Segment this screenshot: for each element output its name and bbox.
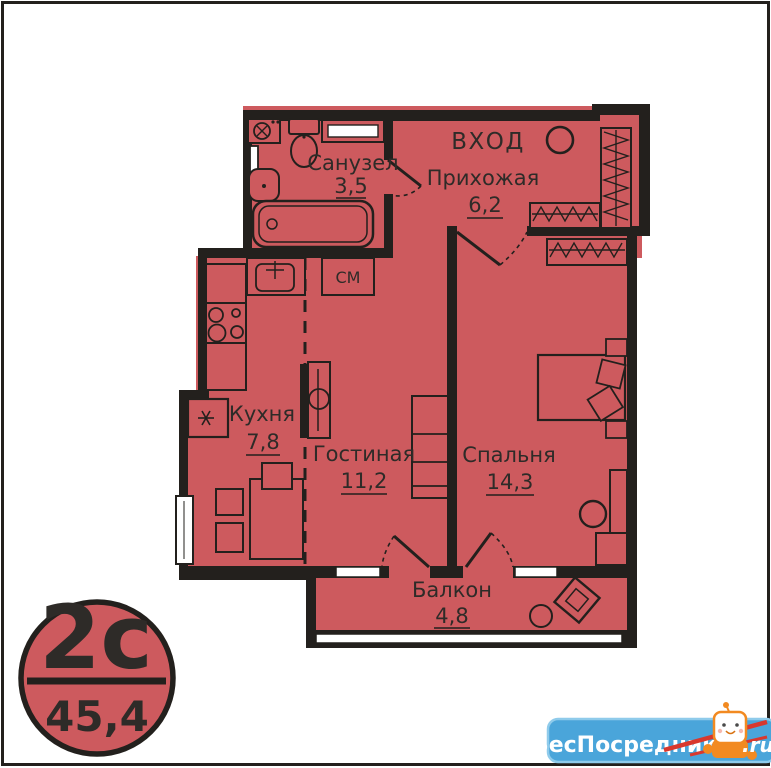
kitchen-table-icon — [250, 479, 303, 559]
badge-unit-type: 2с — [39, 586, 152, 689]
tv-wall-bar — [300, 364, 308, 438]
pillow-icon — [596, 359, 625, 388]
floor-plan-page: ВХОД Санузел 3,5 Прихожая 6,2 Кухня 7,8 … — [0, 0, 771, 768]
mascot-eye — [722, 723, 726, 727]
wall-hall-right — [639, 104, 650, 236]
unit-badge: 2с 45,4 — [21, 586, 173, 754]
tap-dot — [276, 120, 279, 123]
desk-chair-icon — [580, 501, 606, 527]
room-area-bedroom: 14,3 — [487, 470, 534, 494]
nightstand-icon — [606, 421, 627, 438]
toilet-dot — [302, 135, 305, 138]
room-label-bathroom: Санузел — [307, 151, 398, 175]
kitchen-chair-icon — [262, 463, 292, 489]
room-area-kitchen: 7,8 — [246, 430, 279, 454]
sofa-icon — [412, 396, 448, 498]
mascot-hand — [703, 744, 713, 754]
room-area-living: 11,2 — [341, 469, 388, 493]
wardrobe-hall-vertical-icon — [601, 128, 631, 228]
mascot-eye — [735, 723, 739, 727]
window-living — [336, 567, 380, 577]
sink-drain-dot — [262, 184, 266, 188]
room-area-bathroom: 3,5 — [334, 174, 367, 198]
window-balcony-strip — [316, 634, 622, 643]
kitchen-chair-icon — [216, 523, 243, 552]
mirror-icon — [328, 125, 378, 137]
floor-plan-svg: ВХОД Санузел 3,5 Прихожая 6,2 Кухня 7,8 … — [0, 0, 771, 768]
room-label-bedroom: Спальня — [462, 443, 555, 467]
washing-machine-label: СМ — [336, 268, 361, 287]
mascot-antenna-tip — [723, 702, 729, 708]
badge-total-area: 45,4 — [45, 692, 149, 741]
nightstand-icon — [606, 339, 627, 356]
counter-box — [206, 343, 246, 390]
watermark-tld: .ru — [742, 733, 771, 757]
window-bedroom — [515, 567, 557, 577]
wardrobe-box — [547, 239, 627, 265]
kitchen-chair-icon — [216, 489, 243, 515]
wardrobe-bedroom-icon — [547, 239, 627, 265]
counter-box — [206, 264, 246, 303]
desk-icon — [596, 533, 627, 565]
room-label-kitchen: Кухня — [229, 402, 295, 426]
tv-stand-icon — [308, 362, 330, 438]
wall-bathroom-right-lower — [384, 194, 393, 258]
room-area-balcony: 4,8 — [435, 604, 468, 628]
wall-right — [627, 230, 637, 641]
wall-kitchen-bottom — [179, 566, 310, 580]
wall-balcony-left — [306, 571, 316, 648]
tap-dot — [271, 120, 274, 123]
wall-bathroom-bottom — [243, 248, 393, 258]
mascot-cheek — [718, 729, 722, 733]
toilet-tank-icon — [289, 119, 319, 134]
room-area-hallway: 6,2 — [468, 193, 501, 217]
room-label-hallway: Прихожая — [427, 166, 539, 190]
room-label-living: Гостиная — [313, 442, 415, 466]
watermark-site-name: БесПосредника — [532, 733, 732, 758]
bathtub-icon — [253, 201, 373, 247]
entrance-label: ВХОД — [451, 129, 525, 155]
room-label-balcony: Балкон — [412, 578, 492, 602]
desk-console-icon — [610, 470, 627, 533]
wardrobe-hall-horizontal-icon — [530, 203, 600, 228]
